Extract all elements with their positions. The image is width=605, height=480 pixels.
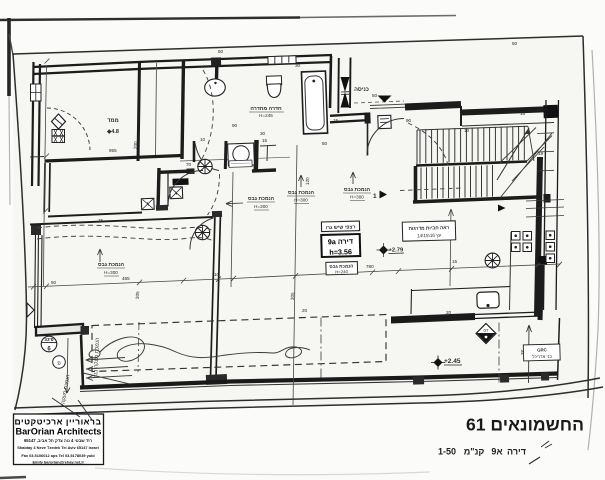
svg-text:5: 5: [430, 103, 433, 108]
svg-text:רח' שבטי 4 נוה צדק תל אביב, 65: רח' שבטי 4 נוה צדק תל אביב, 65147: [24, 438, 93, 443]
svg-text:9א: 9א: [491, 447, 502, 457]
svg-text:פ'33: פ'33: [44, 337, 53, 342]
svg-text:90: 90: [232, 123, 238, 128]
svg-text:90: 90: [406, 118, 412, 123]
svg-text:955: 955: [109, 148, 117, 153]
svg-text:בראוריין ארכיטקטים: בראוריין ארכיטקטים: [15, 417, 102, 427]
svg-text:H=240: H=240: [335, 269, 349, 274]
svg-text:ממד: ממד: [107, 118, 118, 124]
svg-text:10: 10: [214, 272, 220, 277]
svg-text:485: 485: [122, 276, 130, 281]
svg-text:14\15\16 עץ: 14\15\16 עץ: [417, 233, 442, 239]
svg-text:H=300: H=300: [350, 195, 364, 200]
svg-text:120: 120: [305, 177, 310, 185]
svg-text:20: 20: [302, 308, 308, 313]
svg-text:10: 10: [464, 128, 470, 133]
svg-text:החשמונאים 61: החשמונאים 61: [466, 415, 584, 435]
svg-text:כניסה: כניסה: [354, 87, 369, 93]
svg-text:הנמכת גבס: הנמכת גבס: [98, 262, 124, 268]
svg-text:50: 50: [512, 41, 518, 46]
svg-text:50: 50: [322, 141, 328, 146]
svg-text:30: 30: [295, 63, 301, 68]
svg-text:20: 20: [446, 310, 452, 315]
svg-text:הנמכת גבס: הנמכת גבס: [329, 263, 353, 269]
svg-text:קנ"מ: קנ"מ: [464, 447, 485, 457]
svg-text:07: 07: [483, 328, 489, 333]
svg-text:H=300: H=300: [104, 270, 118, 275]
svg-text:30: 30: [260, 131, 266, 136]
svg-text:Shabtay 4 Neve Tzedek Tel Aviv: Shabtay 4 Neve Tzedek Tel Aviv 65147 Isr…: [17, 445, 99, 450]
svg-text:+2.79: +2.79: [389, 248, 404, 254]
svg-text:50: 50: [372, 93, 378, 98]
svg-text:+2.45: +2.45: [444, 358, 461, 365]
svg-text:דירה: דירה: [507, 447, 526, 457]
svg-text:H=300: H=300: [254, 204, 268, 209]
svg-text:50: 50: [51, 280, 57, 285]
svg-text:רצפי שיש גרו: רצפי שיש גרו: [326, 224, 356, 231]
svg-text:הנמכת גבס: הנמכת גבס: [344, 187, 370, 193]
svg-text:◆4.8: ◆4.8: [106, 129, 119, 135]
svg-text:הנמכת גבס: הנמכת גבס: [248, 196, 274, 202]
svg-text:H=300: H=300: [294, 198, 308, 203]
svg-text:GRC: GRC: [537, 347, 548, 352]
svg-text:200: 200: [133, 141, 138, 149]
svg-text:1: 1: [373, 193, 377, 200]
svg-text:780: 780: [366, 264, 374, 269]
svg-text:15: 15: [452, 259, 458, 264]
svg-text:H=245: H=245: [259, 113, 273, 118]
svg-text:1-50: 1-50: [438, 447, 456, 457]
svg-text:ראה חביות מדרגות: ראה חביות מדרגות: [409, 226, 450, 232]
svg-text:הנמכת גבס: הנמכת גבס: [288, 190, 314, 196]
svg-text:Emily barorian@rehav.net.il: Emily barorian@rehav.net.il: [32, 460, 83, 465]
svg-text:בני אדריכל: בני אדריכל: [532, 354, 552, 360]
svg-text:305: 305: [135, 291, 140, 299]
svg-text:9a דירה: 9a דירה: [328, 237, 353, 247]
svg-text:10: 10: [200, 137, 206, 142]
svg-text:h=3.56: h=3.56: [329, 247, 352, 257]
svg-text:19: 19: [538, 151, 544, 156]
svg-text:15: 15: [262, 138, 268, 143]
svg-text:15: 15: [333, 118, 339, 123]
svg-text:50: 50: [218, 49, 224, 54]
svg-text:305: 305: [290, 292, 295, 300]
svg-text:15: 15: [98, 218, 104, 223]
svg-text:חדרה מחדרה: חדרה מחדרה: [250, 106, 282, 112]
svg-text:16: 16: [520, 111, 526, 116]
svg-text:70: 70: [186, 162, 192, 167]
svg-text:BarOrian Architects: BarOrian Architects: [16, 427, 102, 437]
svg-text:Fax 03.5106012 aps Tel 03.5: Fax 03.5106012 aps Tel 03.5178039 yuld: [21, 453, 95, 458]
